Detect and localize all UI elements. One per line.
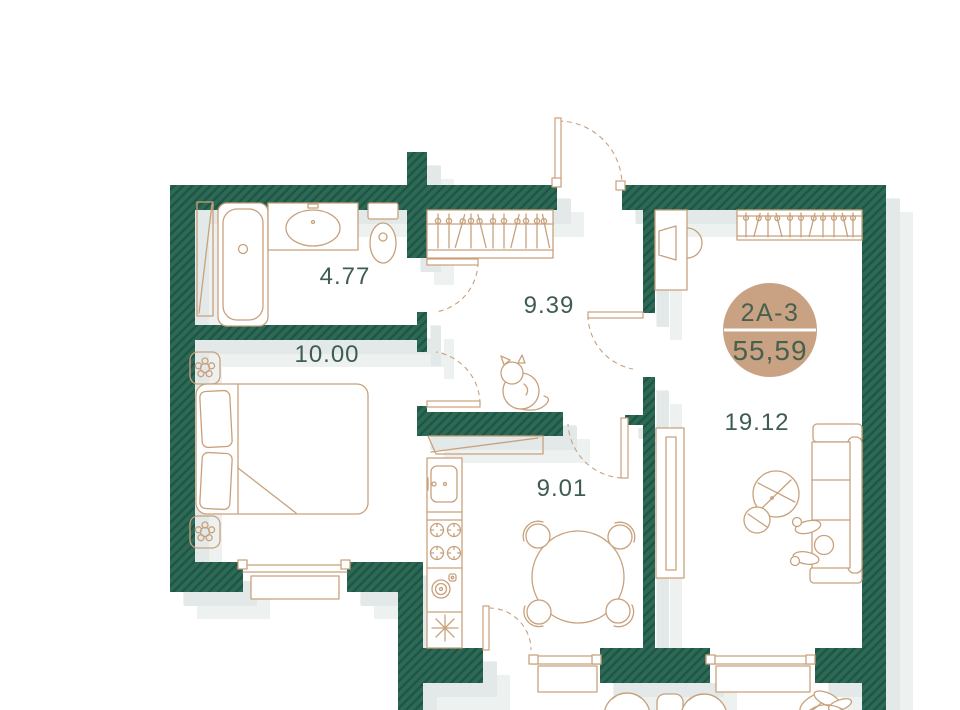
hallway-area-label: 9.39 <box>524 292 575 319</box>
dining-chair-icon <box>523 521 550 548</box>
living-room: 2А-3 55,59 19.12 <box>655 210 862 583</box>
bedroom-area-label: 10.00 <box>294 341 359 368</box>
bathroom-door <box>427 259 478 312</box>
cat-icon <box>501 355 548 410</box>
kitchen: 9.01 <box>427 436 635 648</box>
kitchen-door <box>568 418 628 478</box>
coffee-table-icon <box>744 471 799 533</box>
bedroom: 10.00 <box>190 341 368 548</box>
balcony-chair-icon <box>604 693 650 710</box>
bathroom: 4.77 <box>197 202 398 326</box>
dining-chair-icon <box>606 599 634 627</box>
unit-total-area: 55,59 <box>732 335 807 366</box>
balcony-table-icon <box>657 694 683 710</box>
toilet-icon <box>368 203 398 263</box>
double-bed-icon <box>196 384 368 514</box>
closet-hangers-icon <box>427 210 553 258</box>
tall-panel-icon <box>197 202 213 316</box>
bathtub-icon <box>218 203 268 326</box>
living-room-window <box>706 648 815 692</box>
unit-number: 2А-3 <box>741 299 800 327</box>
bedroom-window <box>238 560 350 599</box>
dining-chair-icon <box>524 600 551 627</box>
vent-shelf-icon <box>428 436 543 454</box>
living-room-door <box>588 312 643 369</box>
star-icon <box>432 615 458 641</box>
unit-badge: 2А-3 55,59 <box>723 283 817 377</box>
kitchen-window <box>529 648 601 692</box>
living-room-area-label: 19.12 <box>724 409 789 436</box>
entrance-door <box>552 118 625 190</box>
balcony-chair-icon <box>681 694 727 710</box>
floor-plan: 4.77 10.00 <box>0 0 960 710</box>
bathroom-area-label: 4.77 <box>320 263 371 290</box>
floor-plan-drawing: 4.77 10.00 <box>0 0 960 710</box>
dining-chair-icon <box>608 522 635 549</box>
wardrobe-hangers-icon <box>737 210 862 240</box>
bedroom-door <box>427 352 480 407</box>
sink-icon <box>268 203 358 250</box>
tv-console-icon <box>656 428 684 578</box>
kitchen-area-label: 9.01 <box>537 475 588 502</box>
hallway: 9.39 <box>427 210 574 410</box>
